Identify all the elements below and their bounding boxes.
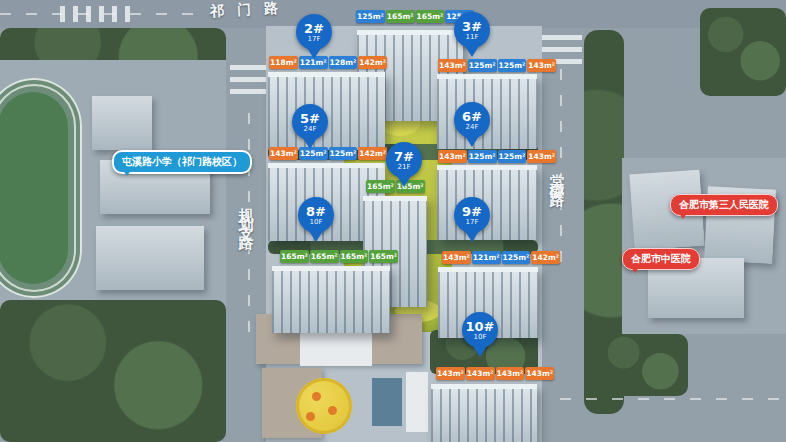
kindergarten-roof-white	[300, 332, 372, 366]
hospital-label-2[interactable]: 合肥市中医院	[622, 248, 700, 270]
building-number: 3#	[462, 20, 482, 33]
building-badge-9[interactable]: 9# 17F	[454, 197, 490, 249]
area-tag[interactable]: 125m²	[356, 10, 385, 23]
area-tag[interactable]: 125m²	[498, 59, 527, 72]
area-tag[interactable]: 143m²	[496, 367, 525, 380]
school-building	[92, 96, 152, 150]
bottom-road-lane-line	[560, 398, 786, 400]
area-tag[interactable]: 165m²	[310, 250, 339, 263]
area-tag[interactable]: 165m²	[369, 250, 398, 263]
pin-tail-icon	[309, 231, 323, 249]
building-badge-2[interactable]: 2# 17F	[296, 14, 332, 66]
pin-circle: 7# 21F	[386, 142, 422, 178]
area-tag[interactable]: 165m²	[340, 250, 369, 263]
tower-8	[272, 266, 390, 333]
pin-tail-icon	[465, 136, 479, 154]
hospital-label-1[interactable]: 合肥市第三人民医院	[670, 194, 778, 216]
kindergarten-court	[372, 378, 402, 426]
pin-circle: 3# 11F	[454, 12, 490, 48]
playground-dot	[312, 392, 321, 401]
building-floors: 10F	[310, 218, 323, 226]
pin-tail-icon	[465, 231, 479, 249]
label-pointer-icon	[631, 267, 639, 277]
playground-dot	[306, 412, 315, 421]
trees-top-right	[700, 8, 786, 96]
crosswalk-top	[60, 6, 134, 22]
pin-tail-icon	[465, 46, 479, 64]
building-badge-7[interactable]: 7# 21F	[386, 142, 422, 194]
pin-tail-icon	[473, 346, 487, 364]
building-number: 9#	[462, 205, 482, 218]
pin-tail-icon	[303, 138, 317, 156]
kindergarten-playground	[296, 378, 352, 434]
building-number: 2#	[304, 22, 324, 35]
building-badge-8[interactable]: 8# 10F	[298, 197, 334, 249]
school-label-text: 屯溪路小学（祁门路校区）	[122, 156, 242, 167]
building-floors: 17F	[308, 35, 321, 43]
building-badge-6[interactable]: 6# 24F	[454, 102, 490, 154]
area-tag[interactable]: 143m²	[436, 367, 465, 380]
building-badge-10[interactable]: 10# 10F	[462, 312, 498, 364]
building-badge-3[interactable]: 3# 11F	[454, 12, 490, 64]
playground-dot	[328, 406, 337, 415]
building-floors: 21F	[398, 163, 411, 171]
area-tag[interactable]: 143m²	[527, 150, 556, 163]
pin-circle: 2# 17F	[296, 14, 332, 50]
building-floors: 24F	[304, 125, 317, 133]
building-number: 6#	[462, 110, 482, 123]
trees-bottom-left	[0, 300, 226, 442]
area-tag[interactable]: 165m²	[416, 10, 445, 23]
building-floors: 24F	[466, 123, 479, 131]
area-tag[interactable]: 142m²	[531, 251, 560, 264]
area-tag[interactable]: 143m²	[525, 367, 554, 380]
area-tag[interactable]: 143m²	[442, 251, 471, 264]
area-tag[interactable]: 142m²	[358, 147, 387, 160]
kindergarten-building	[406, 372, 428, 432]
area-tag[interactable]: 165m²	[280, 250, 309, 263]
pin-circle: 8# 10F	[298, 197, 334, 233]
area-tag[interactable]: 128m²	[329, 56, 358, 69]
building-number: 8#	[306, 205, 326, 218]
area-tag[interactable]: 165m²	[386, 10, 415, 23]
pin-circle: 5# 24F	[292, 104, 328, 140]
trees-bottom-right	[596, 334, 688, 396]
crosswalk-left	[230, 60, 270, 94]
school-label[interactable]: 屯溪路小学（祁门路校区）	[112, 150, 252, 174]
pin-circle: 10# 10F	[462, 312, 498, 348]
school-building	[96, 226, 204, 290]
building-floors: 17F	[466, 218, 479, 226]
aerial-site-map: 祁门路 规划支路 棠樾路 125m²165m²165m²125m² 118m²1…	[0, 0, 786, 442]
building-number: 7#	[394, 150, 414, 163]
area-tag[interactable]: 125m²	[329, 147, 358, 160]
pin-tail-icon	[307, 48, 321, 66]
area-tag[interactable]: 125m²	[502, 251, 531, 264]
area-tag[interactable]: 142m²	[358, 56, 387, 69]
building-badge-5[interactable]: 5# 24F	[292, 104, 328, 156]
area-tags-tower-10: 143m²143m²143m²143m²	[436, 367, 554, 380]
tower-10	[431, 384, 537, 442]
building-number: 10#	[466, 320, 495, 333]
hospital-label-1-text: 合肥市第三人民医院	[679, 199, 769, 210]
pin-circle: 6# 24F	[454, 102, 490, 138]
building-floors: 11F	[466, 33, 479, 41]
label-pointer-icon	[679, 213, 687, 223]
road-name-right: 棠樾路	[547, 162, 566, 189]
pin-tail-icon	[397, 176, 411, 194]
right-road-lane-line	[560, 56, 562, 262]
road-name-left: 规划支路	[236, 196, 255, 232]
building-floors: 10F	[474, 333, 487, 341]
area-tags-tower-8: 165m²165m²165m²165m²	[280, 250, 398, 263]
pin-circle: 9# 17F	[454, 197, 490, 233]
stadium-field	[0, 92, 68, 284]
area-tag[interactable]: 125m²	[498, 150, 527, 163]
area-tag[interactable]: 143m²	[527, 59, 556, 72]
area-tags-tower-5: 143m²125m²125m²142m²	[269, 147, 387, 160]
area-tags-tower-9: 143m²121m²125m²142m²	[442, 251, 560, 264]
area-tag[interactable]: 121m²	[472, 251, 501, 264]
area-tag[interactable]: 118m²	[269, 56, 298, 69]
label-pointer-icon	[122, 169, 132, 181]
hospital-label-2-text: 合肥市中医院	[631, 253, 691, 264]
building-number: 5#	[300, 112, 320, 125]
area-tag[interactable]: 143m²	[466, 367, 495, 380]
